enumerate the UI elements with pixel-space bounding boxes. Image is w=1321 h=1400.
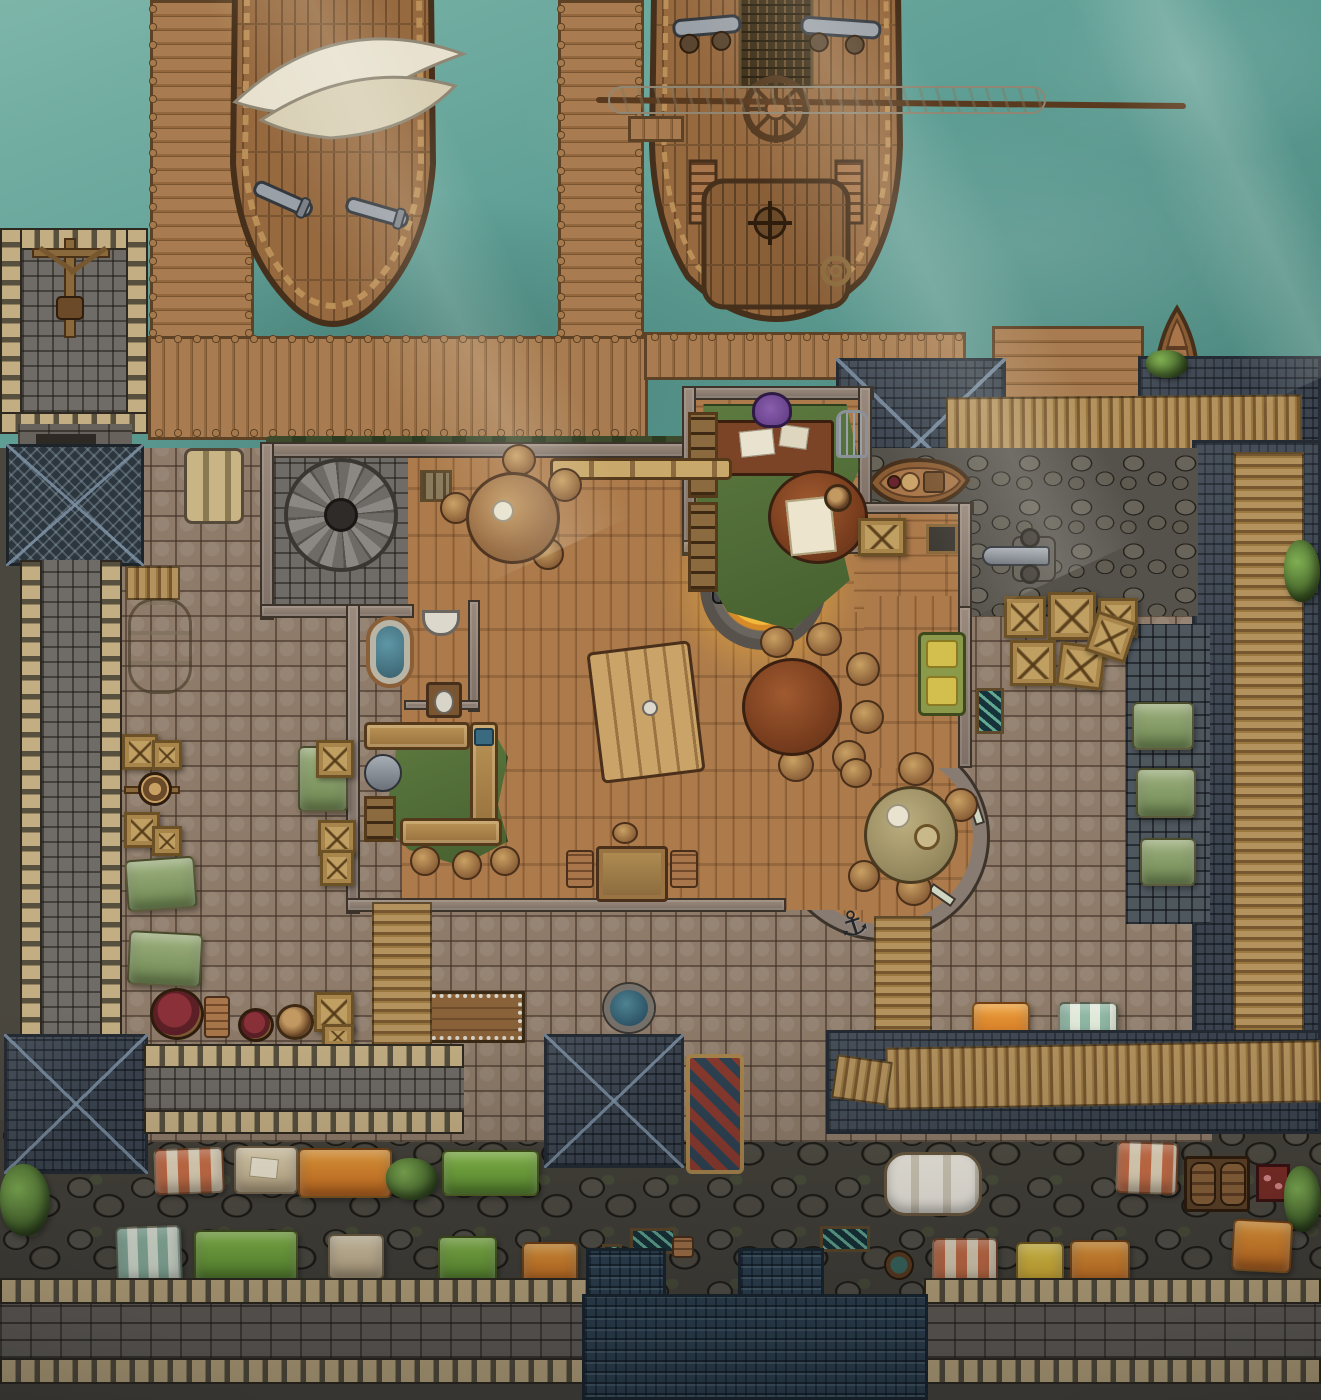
painted-cart xyxy=(686,1054,744,1174)
bay-bowl xyxy=(914,824,940,850)
hanging-sacks xyxy=(184,448,244,524)
stall-green-2 xyxy=(194,1230,298,1282)
fish-table-2 xyxy=(820,1226,870,1252)
wall-north xyxy=(260,442,698,458)
small-wine-barrel xyxy=(238,1008,274,1042)
stall-orange-1 xyxy=(298,1148,392,1198)
boardwalk-posts-n xyxy=(150,330,646,348)
battle-map: ⚓ xyxy=(0,0,1321,1400)
counter-basin xyxy=(474,728,494,746)
pier-step-box xyxy=(628,116,684,142)
card-table xyxy=(596,846,668,902)
stall-tan-2 xyxy=(328,1234,384,1280)
bush-ne-roof xyxy=(1146,350,1188,378)
water-basin xyxy=(604,984,654,1032)
stool xyxy=(850,700,884,734)
couch-cushion-1 xyxy=(926,640,958,668)
south-wall-l-s xyxy=(0,1358,588,1384)
covered-wagon xyxy=(884,1152,982,1216)
stall-striped-2 xyxy=(1115,1141,1179,1195)
gate-net-hips xyxy=(6,444,144,566)
stool xyxy=(410,846,440,876)
stool xyxy=(452,850,482,880)
table-globe xyxy=(824,484,852,512)
stud-cart xyxy=(424,994,522,1040)
wall-storage-e xyxy=(958,502,972,612)
stool xyxy=(612,822,638,844)
stool xyxy=(760,626,794,658)
kitchen-counter-s xyxy=(400,818,502,846)
fish-barrel xyxy=(884,1250,914,1280)
scaffold-path-w xyxy=(372,902,432,1066)
rooftop-bridge xyxy=(885,1040,1321,1110)
south-rampart-s xyxy=(144,1110,464,1134)
wall-bath-e xyxy=(468,600,480,712)
kitchen-pot xyxy=(364,754,402,792)
merchant-grate xyxy=(740,0,812,87)
south-wall-r-n xyxy=(924,1278,1321,1304)
south-rampart-walk xyxy=(144,1068,464,1110)
stool xyxy=(490,846,520,876)
boardwalk-east-posts xyxy=(646,328,964,344)
south-wall-r-s xyxy=(924,1358,1321,1384)
wall-storage-n xyxy=(854,502,974,514)
crate-mid xyxy=(320,850,354,886)
crate-pile xyxy=(1010,640,1056,686)
ship-merchant xyxy=(640,0,912,330)
fish-crate-ne xyxy=(976,688,1004,734)
stool xyxy=(840,758,872,788)
south-wall-l-n xyxy=(0,1278,588,1304)
crane-spool xyxy=(56,296,84,320)
south-rampart-n xyxy=(144,1044,464,1068)
tarp-stall-1 xyxy=(124,856,197,913)
windlass-wheel xyxy=(138,772,172,806)
market-tent-green-1 xyxy=(1132,702,1194,750)
candle-box xyxy=(364,796,396,842)
crate-pile xyxy=(1004,596,1046,638)
west-rampart-walk xyxy=(42,560,100,1038)
sw-pyramid-hips xyxy=(4,1034,148,1174)
west-rampart-battlement-e xyxy=(100,560,122,1038)
wall-west-upper xyxy=(260,442,274,620)
stool xyxy=(898,752,934,786)
nw-tower-battlement-w xyxy=(0,228,22,434)
stool xyxy=(806,622,842,656)
bush-east-wall xyxy=(1284,540,1320,602)
desk-paper-2 xyxy=(779,424,810,450)
bookshelf-lower xyxy=(688,502,718,592)
furled-sail xyxy=(608,86,1046,114)
stall-green-3 xyxy=(438,1236,497,1284)
tarp-stall-2 xyxy=(127,930,204,988)
market-tent-green-2 xyxy=(1136,768,1196,818)
stall-green-1 xyxy=(442,1150,539,1196)
ne-cannon-wheel-s xyxy=(1020,564,1040,584)
wine-vat xyxy=(150,988,204,1040)
couch-cushion-2 xyxy=(926,676,958,706)
office-chair xyxy=(752,392,792,428)
south-wall-l xyxy=(0,1304,588,1358)
blue-shingle-hall xyxy=(582,1294,928,1400)
south-wall-r xyxy=(924,1304,1321,1358)
bay-plate xyxy=(886,804,910,828)
vat-chair xyxy=(204,996,230,1038)
stall-striped-1 xyxy=(153,1147,225,1195)
bookshelf-upper xyxy=(688,412,718,498)
merchant-stern-deck xyxy=(704,181,848,307)
round-table-north xyxy=(466,472,560,564)
round-dark-table xyxy=(742,658,842,756)
stall-map xyxy=(249,1157,279,1180)
spiral-hub xyxy=(324,498,358,532)
crate-pile xyxy=(1048,592,1096,640)
card-chair-l xyxy=(566,850,594,888)
latrine-seat xyxy=(434,690,454,714)
storage-wallbox xyxy=(926,524,958,554)
bush-street-3 xyxy=(0,1164,50,1236)
street-chair xyxy=(672,1236,694,1258)
mid-pyramid-hips xyxy=(544,1034,684,1168)
table-mug xyxy=(642,700,658,716)
storage-crate xyxy=(858,518,906,556)
stool xyxy=(846,652,880,686)
stall-orange-4 xyxy=(1231,1218,1294,1273)
bush-street-1 xyxy=(386,1158,438,1200)
bathtub-water xyxy=(376,626,404,678)
crate-mid xyxy=(316,740,354,778)
rooftop-scaffold-sw xyxy=(831,1054,893,1105)
hand-cart xyxy=(126,566,180,600)
west-rampart-battlement-w xyxy=(20,560,42,1038)
ship-sloop xyxy=(205,0,470,342)
market-tent-green-3 xyxy=(1140,838,1196,886)
table-plate xyxy=(492,500,514,522)
desk-paper-1 xyxy=(739,428,776,457)
cart-barrel-1 xyxy=(1190,1162,1216,1206)
kitchen-counter-n xyxy=(364,722,470,750)
bay-table xyxy=(864,786,958,884)
cart-barrel-2 xyxy=(1220,1162,1246,1206)
birdcage xyxy=(836,410,868,458)
ne-cannon-wheel-n xyxy=(1020,528,1040,548)
ne-cannon-barrel xyxy=(982,546,1050,566)
grain-sack xyxy=(128,598,192,694)
stool xyxy=(502,444,536,476)
crate-w xyxy=(152,740,182,770)
card-chair-r xyxy=(670,850,698,888)
barrel-sw xyxy=(276,1004,314,1040)
crate-w xyxy=(152,826,182,856)
